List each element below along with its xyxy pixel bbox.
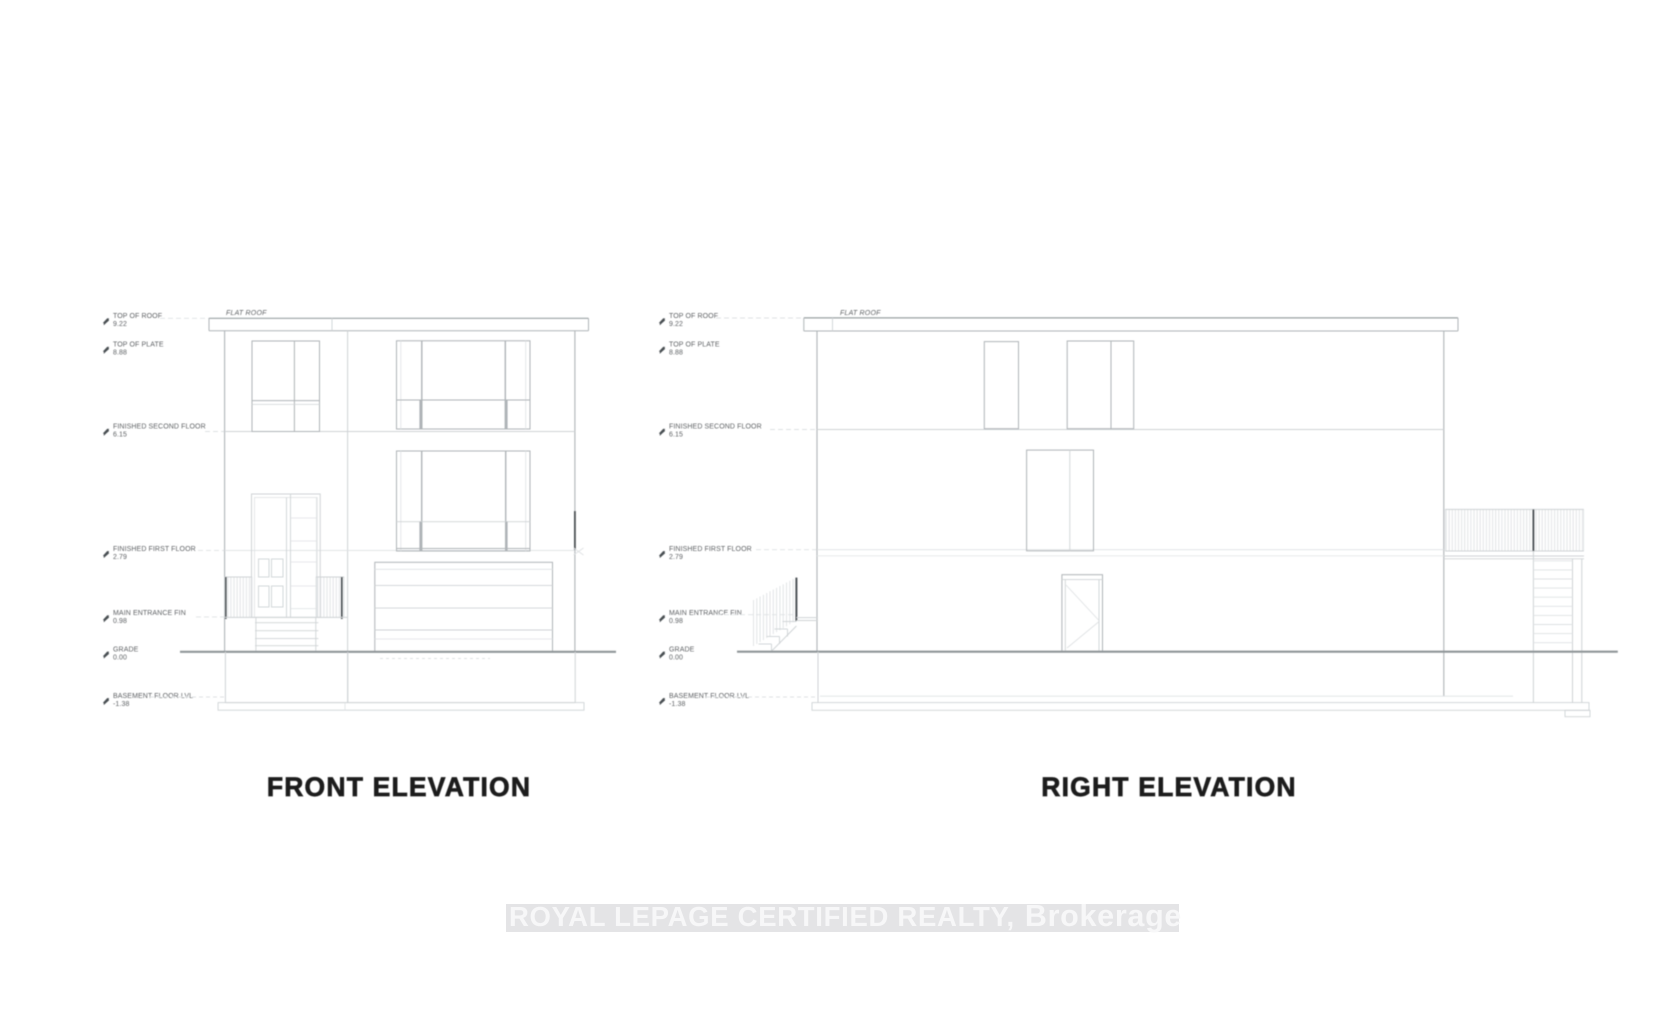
svg-text:9.22: 9.22 (113, 321, 127, 328)
svg-text:FINISHED FIRST FLOOR: FINISHED FIRST FLOOR (113, 546, 196, 553)
svg-text:BASEMENT FLOOR LVL: BASEMENT FLOOR LVL (113, 693, 193, 700)
svg-text:-1.38: -1.38 (113, 701, 129, 708)
svg-text:FLAT ROOF: FLAT ROOF (226, 310, 267, 317)
svg-text:FINISHED SECOND FLOOR: FINISHED SECOND FLOOR (669, 424, 762, 431)
svg-text:TOP OF ROOF: TOP OF ROOF (113, 313, 162, 320)
svg-text:8.88: 8.88 (113, 350, 127, 357)
svg-text:GRADE: GRADE (113, 646, 139, 653)
svg-text:6.15: 6.15 (113, 432, 127, 439)
svg-text:RIGHT ELEVATION: RIGHT ELEVATION (1041, 772, 1297, 802)
svg-text:9.22: 9.22 (669, 321, 683, 328)
svg-text:TOP OF PLATE: TOP OF PLATE (669, 342, 720, 349)
svg-text:FLAT ROOF: FLAT ROOF (840, 310, 881, 317)
svg-text:0.98: 0.98 (669, 618, 683, 625)
svg-text:8.88: 8.88 (669, 350, 683, 357)
svg-text:ROYAL LEPAGE CERTIFIED REALTY,: ROYAL LEPAGE CERTIFIED REALTY,Brokerage (509, 899, 1182, 933)
svg-text:2.79: 2.79 (113, 554, 127, 561)
svg-text:0.00: 0.00 (113, 654, 127, 661)
svg-text:FRONT ELEVATION: FRONT ELEVATION (267, 772, 531, 802)
svg-text:TOP OF PLATE: TOP OF PLATE (113, 342, 164, 349)
svg-text:-1.38: -1.38 (669, 701, 685, 708)
svg-text:GRADE: GRADE (669, 646, 695, 653)
svg-text:MAIN ENTRANCE FIN: MAIN ENTRANCE FIN (669, 610, 742, 617)
svg-text:6.15: 6.15 (669, 432, 683, 439)
svg-text:FINISHED SECOND FLOOR: FINISHED SECOND FLOOR (113, 424, 206, 431)
svg-text:0.00: 0.00 (669, 654, 683, 661)
svg-text:2.79: 2.79 (669, 554, 683, 561)
svg-text:MAIN ENTRANCE FIN: MAIN ENTRANCE FIN (113, 610, 186, 617)
svg-text:FINISHED FIRST FLOOR: FINISHED FIRST FLOOR (669, 546, 752, 553)
svg-text:BASEMENT FLOOR LVL: BASEMENT FLOOR LVL (669, 693, 749, 700)
svg-text:0.98: 0.98 (113, 618, 127, 625)
svg-text:TOP OF ROOF: TOP OF ROOF (669, 313, 718, 320)
